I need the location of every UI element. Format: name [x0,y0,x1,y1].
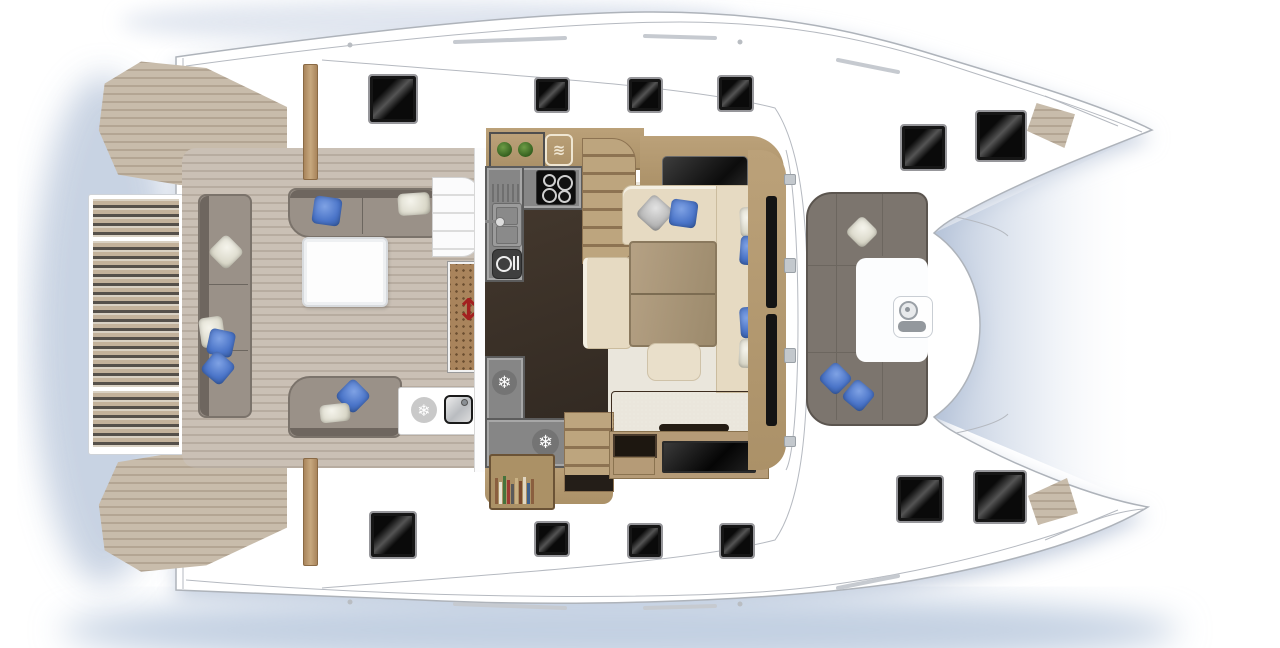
deck-hatch [536,79,568,111]
deck-hatch [977,112,1025,160]
snowflake-glyph: ❄ [538,432,553,453]
sofa-seam [808,352,856,353]
deck-hatch [719,77,752,110]
coachroof-hinge [784,258,796,273]
deck-hatch [975,472,1025,522]
icemaker-snowflake-icon: ❄ [411,397,437,423]
console-winch [899,301,918,320]
coachroof-hinge [784,348,796,363]
book-spine [519,481,522,504]
port-sidedeck-steps [432,177,480,257]
herb-planter [489,132,545,168]
drawer [613,457,655,475]
plant-icon [518,142,533,157]
book-spine [511,484,514,504]
forward-console [893,296,933,338]
winch-dot [905,307,910,312]
bench-seam [362,198,363,234]
faucet-dot [461,399,468,406]
platform-slats-top [93,199,179,237]
tv-screen [662,441,756,473]
companionway-mat: ↕ [448,262,477,372]
snowflake-glyph: ❄ [497,373,511,393]
bench-seam [209,284,248,285]
wetbar-sink [444,395,473,424]
windshield-glass [766,314,777,426]
sofa-seam [882,362,883,420]
lower-bench-backrest [290,428,400,436]
burner [542,188,557,203]
book-spine [527,483,530,504]
book-spine [531,479,534,504]
deck-hatch [902,126,945,169]
book-spine [515,478,518,504]
console-hatch [898,321,926,332]
burner [558,190,571,203]
tv-cabinet [609,431,769,479]
windshield-glass [766,196,777,308]
stern-bench-backrest [200,196,209,416]
coachroof-hinge [784,174,796,185]
catamaran-floorplan: ❄ ↕ ≋ [0,0,1280,648]
book-spine [507,480,510,504]
table-split-line [631,293,715,295]
bookshelf [489,454,555,510]
wood-post-bottom [303,458,318,566]
deck-hatch [629,79,661,111]
deck-hatch [370,76,416,122]
plate-ring [496,256,512,272]
dishwasher-icon [492,249,522,279]
starboard-hull-stairs [564,412,614,492]
pillow-blue [311,195,343,227]
snowflake-glyph: ❄ [417,401,430,420]
fork-bar [513,256,515,270]
deck-hatch [536,523,568,555]
deck-hatch [898,477,942,521]
salon-ottoman [647,343,701,381]
pillow-white [319,402,351,423]
oven-icon: ≋ [545,134,573,166]
fork-bar [517,256,519,270]
wood-post-top [303,64,318,180]
stern-bench [198,194,252,418]
stair-landing [565,475,613,491]
pillow-white [397,192,430,216]
wet-bar: ❄ [398,387,478,435]
burner [557,175,573,191]
cooktop [536,170,576,205]
book-spine [523,477,526,504]
swim-platform [88,194,184,455]
galley-sink [492,203,522,247]
deck-hatch [721,525,753,557]
microwave [613,434,657,458]
sink-basin [496,226,518,244]
book-spine [503,476,506,504]
freezer-snowflake-icon: ❄ [532,429,559,456]
cockpit-table [302,237,388,307]
coachroof-hinge [784,436,796,447]
pillow-blue [668,198,698,228]
sofa-seam [882,194,883,256]
book-spine [495,478,498,504]
salon-table [629,241,717,347]
fridge-snowflake-icon: ❄ [492,370,517,395]
faucet-knob [495,217,505,227]
book-spine [499,482,502,504]
deck-hatch [371,513,415,557]
burner [543,174,556,187]
oven-waves-glyph: ≋ [553,141,566,159]
sofa-seam [808,265,856,266]
sink-drainer [492,184,520,202]
platform-slats-bottom [93,391,179,447]
deck-hatch [629,525,661,557]
plant-icon [497,142,512,157]
salon-bench-left [583,257,632,349]
platform-slats-middle [93,241,179,387]
